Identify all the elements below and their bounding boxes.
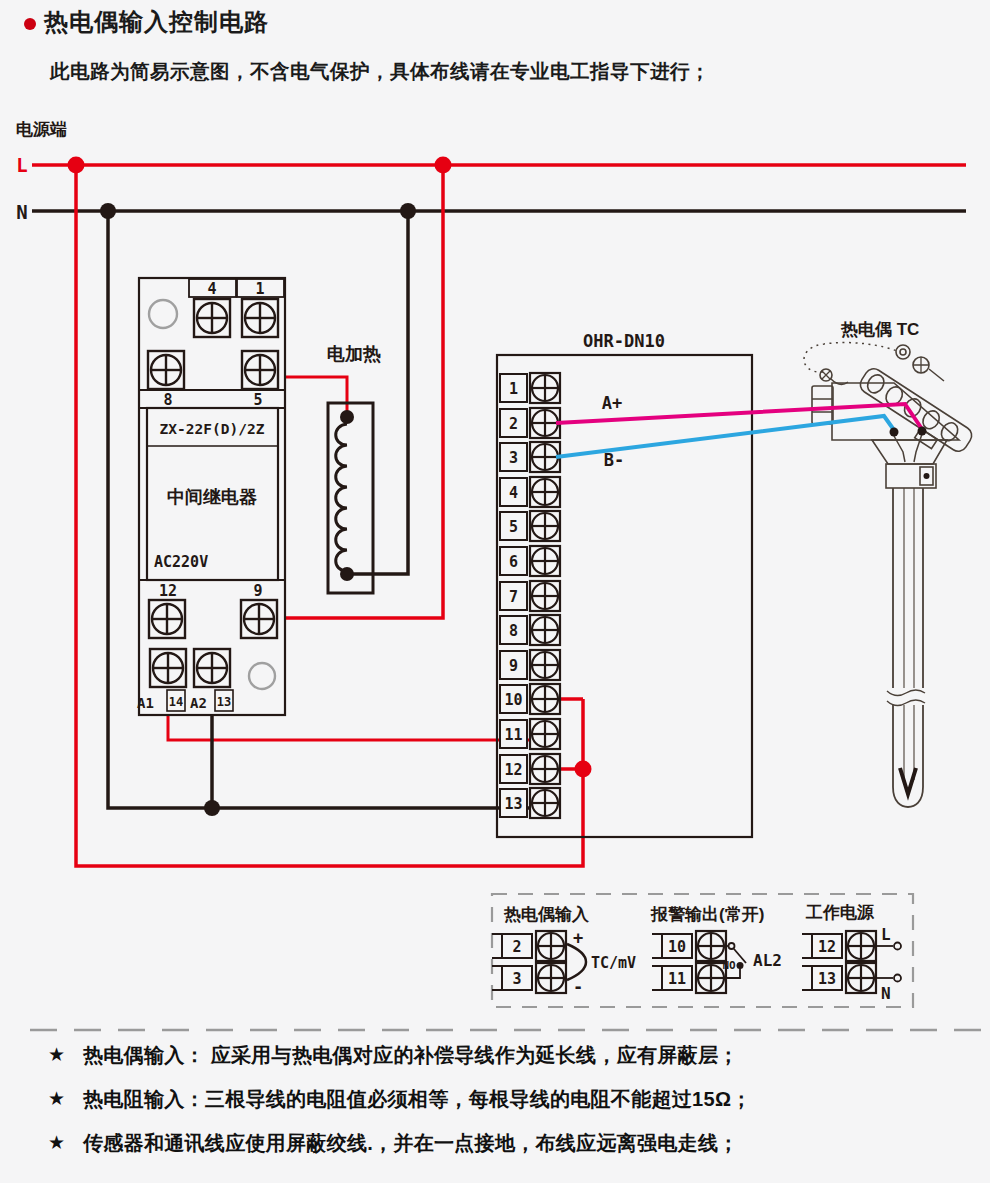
terminal-number: 4 xyxy=(509,484,518,502)
page-subtitle: 此电路为简易示意图，不含电气保护，具体布线请在专业电工指导下进行； xyxy=(50,58,710,85)
note-text: 传感器和通讯线应使用屏蔽绞线.，并在一点接地，布线应远离强电走线； xyxy=(83,1130,738,1156)
legend-tc-signal: TC/mV xyxy=(591,954,636,972)
relay-terminal-9: 9 xyxy=(253,582,262,600)
legend-power-title: 工作电源 xyxy=(805,903,875,922)
thermocouple-label: 热电偶 TC xyxy=(840,320,919,339)
terminal-number: 2 xyxy=(509,415,518,433)
heater-top-terminal xyxy=(340,410,354,424)
relay-terminal-5: 5 xyxy=(253,391,262,409)
star-icon: ★ xyxy=(48,1042,65,1068)
relay-terminal-8: 8 xyxy=(163,391,172,409)
controller-terminals: 1 2 3 4 5 6 7 8 9 10 11 12 13 xyxy=(500,373,560,818)
terminal-number: 12 xyxy=(504,761,522,779)
legend-terminal-13: 13 xyxy=(818,970,836,988)
relay-terminal-14: 14 xyxy=(169,695,183,709)
relay-terminal-4: 4 xyxy=(207,280,216,298)
legend-power-leads xyxy=(874,943,901,982)
relay-terminal-13: 13 xyxy=(217,695,231,709)
power-rails: 电源端 L N xyxy=(16,120,966,223)
legend-terminal-3: 3 xyxy=(512,970,521,988)
legend-neutral-label: N xyxy=(881,984,891,1003)
title-bullet-icon xyxy=(24,18,36,30)
junction-dot xyxy=(400,203,416,219)
legend-no-label: NO xyxy=(722,959,736,972)
note-text: 热电阻输入：三根导线的电阻值必须相等，每根导线的电阻不能超过15Ω； xyxy=(83,1086,751,1112)
legend-terminal-2: 2 xyxy=(512,938,521,956)
relay-terminal-a1: A1 xyxy=(137,695,154,711)
heater-label: 电加热 xyxy=(327,344,381,364)
terminal-number: 5 xyxy=(509,518,518,536)
heater-coil xyxy=(336,424,347,571)
junction-dot xyxy=(68,157,85,174)
note-text: 热电偶输入： 应采用与热电偶对应的补偿导线作为延长线，应有屏蔽层； xyxy=(83,1042,738,1068)
relay-terminal-1: 1 xyxy=(255,280,264,298)
thermocouple-probe xyxy=(893,488,923,688)
legend: 热电偶输入 2 3 + - TC/mV 报警输出(常开) 10 11 xyxy=(492,894,913,1007)
thermocouple-cap-chain xyxy=(804,343,899,373)
relay-voltage: AC220V xyxy=(154,553,208,571)
star-icon: ★ xyxy=(48,1130,65,1156)
heater-bottom-terminal xyxy=(340,567,354,581)
wire-heater-to-neutral xyxy=(347,213,408,574)
relay-terminal-a2: A2 xyxy=(190,695,207,711)
legend-tc-input: 热电偶输入 2 3 + - TC/mV xyxy=(492,905,636,997)
terminal-number: 9 xyxy=(509,657,518,675)
legend-al2-label: AL2 xyxy=(753,951,782,970)
terminal-number: 7 xyxy=(509,588,518,606)
terminal-number: 3 xyxy=(509,449,518,467)
junction-dot xyxy=(100,203,116,219)
wiring-diagram: 电源端 L N xyxy=(0,0,990,1183)
heater: 电加热 xyxy=(327,344,381,593)
legend-bracket xyxy=(567,944,586,980)
legend-terminal-10: 10 xyxy=(668,938,686,956)
terminal-number: 8 xyxy=(509,622,518,640)
thermocouple: 热电偶 TC xyxy=(804,320,975,807)
page-title: 热电偶输入控制电路 xyxy=(44,6,269,38)
terminal-number: 6 xyxy=(509,553,518,571)
legend-work-power: 工作电源 12 13 L N xyxy=(802,903,901,1003)
relay-name: 中间继电器 xyxy=(167,487,257,507)
wire-end-dot xyxy=(890,428,899,437)
sensor-wires: A+ B- xyxy=(556,393,927,470)
legend-alarm-output: 报警输出(常开) 10 11 NO AL2 xyxy=(650,905,782,993)
relay-terminal-12: 12 xyxy=(159,582,177,600)
thermocouple-screw-icon xyxy=(896,345,910,359)
terminal-number: 10 xyxy=(504,691,522,709)
legend-terminal-11: 11 xyxy=(668,970,686,988)
legend-tc-title: 热电偶输入 xyxy=(503,905,590,924)
controller-model: OHR-DN10 xyxy=(583,331,665,351)
wire-live-to-relay9 xyxy=(263,165,443,618)
power-section-label: 电源端 xyxy=(16,120,67,139)
thermocouple-junction-mark xyxy=(900,768,916,794)
junction-dot xyxy=(575,761,592,778)
terminal-number: 13 xyxy=(504,795,522,813)
footnotes: ★ 热电偶输入： 应采用与热电偶对应的补偿导线作为延长线，应有屏蔽层； ★ 热电… xyxy=(48,1042,968,1174)
wire-a-label: A+ xyxy=(602,393,622,413)
legend-alarm-title: 报警输出(常开) xyxy=(650,905,764,924)
legend-plus-label: + xyxy=(573,928,583,948)
line-n-label: N xyxy=(16,201,27,223)
legend-terminal-12: 12 xyxy=(818,938,836,956)
note-row: ★ 热电阻输入：三根导线的电阻值必须相等，每根导线的电阻不能超过15Ω； xyxy=(48,1086,968,1112)
thermocouple-nut xyxy=(812,386,833,424)
note-row: ★ 热电偶输入： 应采用与热电偶对应的补偿导线作为延长线，应有屏蔽层； xyxy=(48,1042,968,1068)
wire-b-label: B- xyxy=(604,450,624,470)
terminal-number: 11 xyxy=(504,726,522,744)
junction-dot xyxy=(435,157,452,174)
controller: OHR-DN10 1 2 3 4 5 6 7 8 9 10 11 12 13 xyxy=(497,331,752,837)
wire-end-dot xyxy=(918,427,927,436)
line-l-label: L xyxy=(16,154,27,176)
terminal-number: 1 xyxy=(509,380,518,398)
note-row: ★ 传感器和通讯线应使用屏蔽绞线.，并在一点接地，布线应远离强电走线； xyxy=(48,1130,968,1156)
legend-minus-label: - xyxy=(573,977,583,997)
relay-model: ZX-22F(D)/2Z xyxy=(160,421,265,437)
legend-live-label: L xyxy=(881,925,891,944)
star-icon: ★ xyxy=(48,1086,65,1112)
junction-dot xyxy=(204,800,220,816)
